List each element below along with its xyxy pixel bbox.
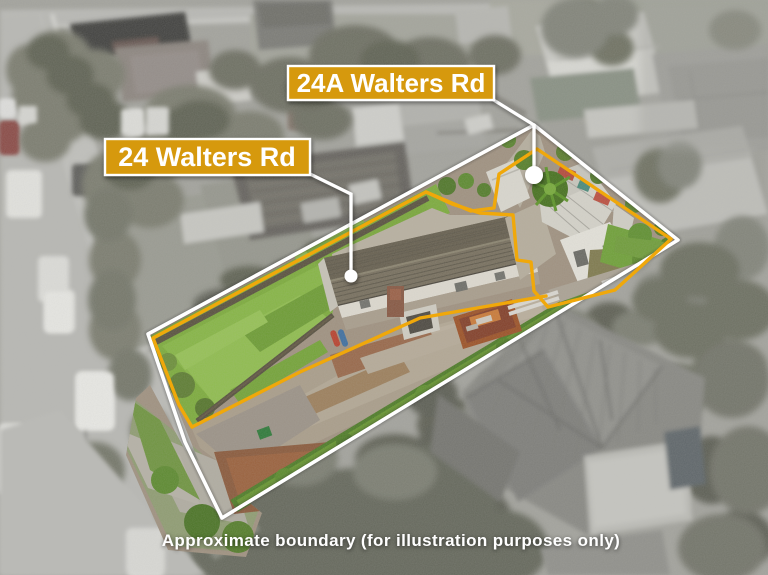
svg-text:Approximate boundary (for illu: Approximate boundary (for illustration p… — [162, 531, 621, 550]
svg-text:24 Walters Rd: 24 Walters Rd — [118, 142, 296, 172]
svg-text:24A Walters Rd: 24A Walters Rd — [297, 68, 486, 98]
